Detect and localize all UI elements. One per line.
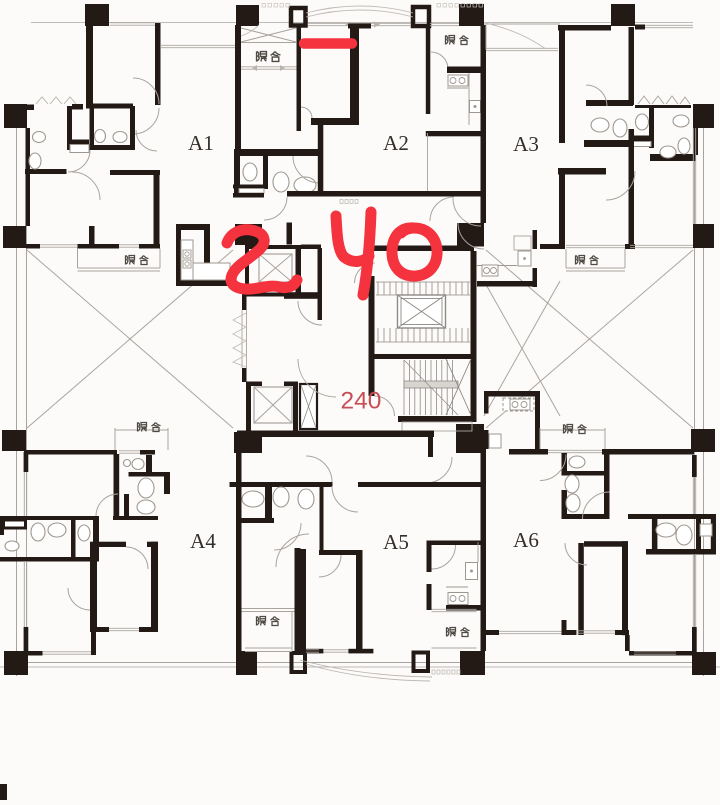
- svg-text:240: 240: [341, 388, 382, 415]
- svg-text:A5: A5: [383, 530, 409, 554]
- svg-text:A4: A4: [190, 529, 216, 553]
- svg-text:A1: A1: [188, 131, 214, 155]
- svg-text:A2: A2: [383, 131, 409, 155]
- svg-text:A6: A6: [513, 528, 539, 552]
- svg-text:A3: A3: [513, 132, 539, 156]
